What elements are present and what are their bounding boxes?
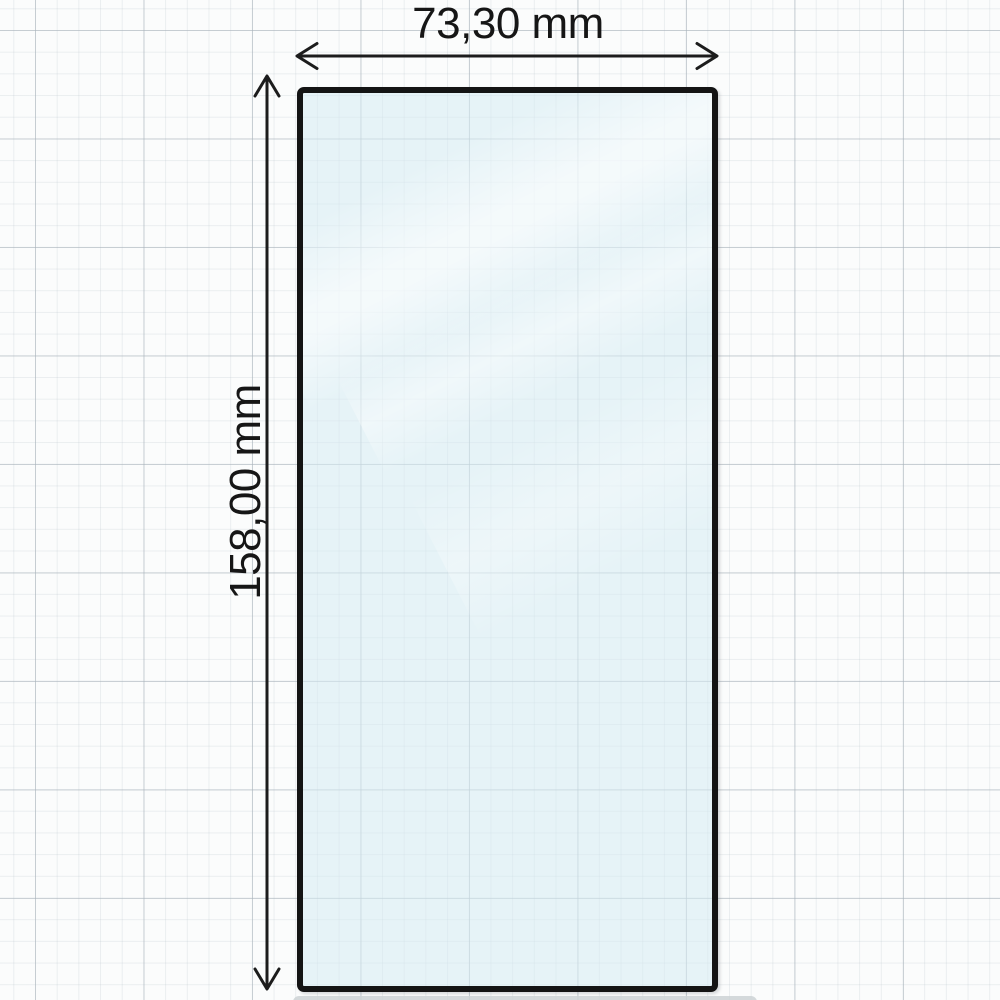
height-dimension-label: 158,00 mm [224,384,268,600]
width-dimension-label: 73,30 mm [412,2,604,46]
glass-reflection-streak [410,306,718,639]
glass-panel [297,87,718,992]
second-object-edge [293,996,757,1000]
dimension-diagram: 73,30 mm 158,00 mm [0,0,1000,1000]
glass-reflection-streak [336,141,718,475]
glass-reflection-streak [297,87,718,411]
